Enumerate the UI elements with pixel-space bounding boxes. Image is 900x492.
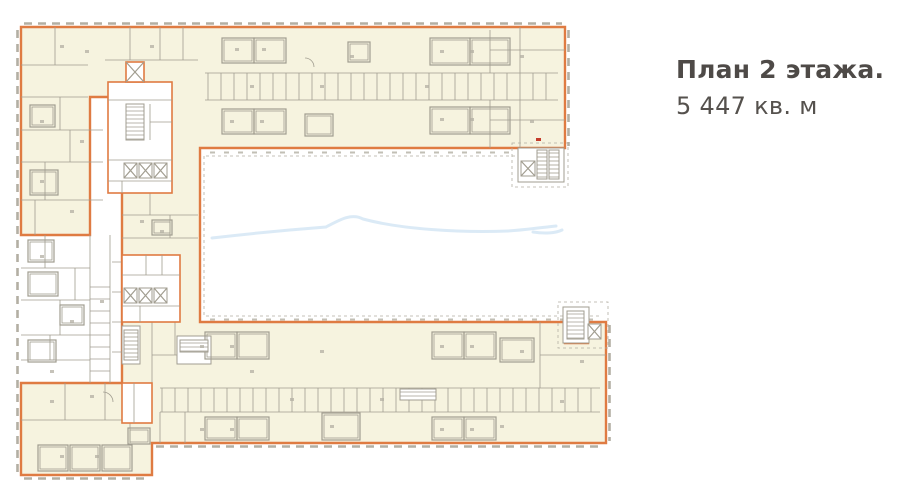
plan-heading: План 2 этажа. bbox=[676, 56, 884, 85]
plan-area-label: 5 447 кв. м bbox=[676, 92, 884, 120]
red-annotation-mark bbox=[536, 138, 541, 141]
watermark-curve bbox=[212, 217, 562, 238]
floor-plan-page: План 2 этажа. 5 447 кв. м bbox=[0, 0, 900, 492]
left-service-rooms bbox=[21, 235, 122, 383]
title-block: План 2 этажа. 5 447 кв. м bbox=[676, 56, 884, 120]
corridor-lower bbox=[122, 383, 152, 423]
floor-plan-drawing bbox=[0, 0, 640, 492]
